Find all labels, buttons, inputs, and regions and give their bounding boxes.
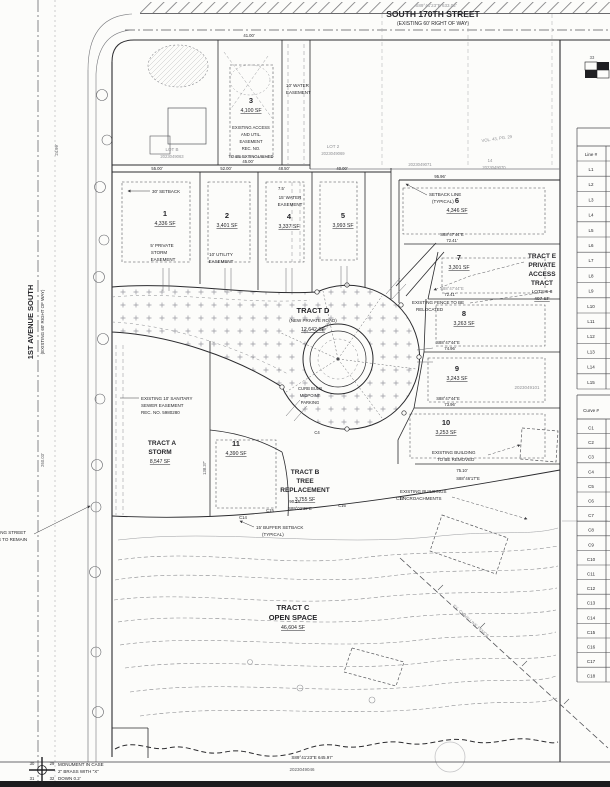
parcel-lot-b: LOT B [166,147,179,152]
section-number-sw: 31 [30,776,35,781]
tract-a-type: STORM [148,449,171,456]
line-table-row: L8 [588,273,594,278]
curve-table-row: C5 [588,484,594,489]
curve-table-row: C11 [587,572,595,577]
tract-b-name: TRACT B [291,469,320,476]
curve-table-row: C2 [588,440,594,445]
scan-edge-band [0,781,610,787]
note-sewer-easement: REC. NO. 5980280 [141,410,180,415]
bearing-lot8-9: S88°47'44"E [436,340,460,345]
line-table-row: L3 [588,197,594,202]
dim-lot2-top: 52.00' [220,166,231,171]
note-buffer-setback: 15' BUFFER SETBACK [256,525,303,530]
parcel-071: 2023049071 [408,162,432,167]
street-1st-ave: 1ST AVENUE SOUTH (EXISTING 60' RIGHT OF … [26,0,112,781]
line-table-row: L14 [587,365,595,370]
lot-8-number: 8 [462,309,466,318]
tract-e-line4: TRACT [531,280,553,287]
lot-1-number: 1 [163,209,167,218]
dim-top-lot3: 41.00' [243,33,254,38]
line-table-row: L11 [587,319,595,324]
plat-map-page: S89°41'23"E 633.02' SOUTH 170TH STREET (… [0,0,610,787]
line-table-row: L15 [587,380,595,385]
line-table-row: L13 [587,349,595,354]
dim-lot5-top: 40.00' [336,166,347,171]
plat-map-drawing: S89°41'23"E 633.02' SOUTH 170TH STREET (… [0,0,610,787]
curve-table: Curve # C1 C2 C3 C4 C5 C6 C7 C8 C9 C10 C… [577,395,610,682]
dim-lot1-top: 55.00' [151,166,162,171]
curve-c15: C15 [266,508,274,513]
note-sewer-easement: SEWER EASEMENT [141,403,184,408]
pavement-hatch [140,2,610,13]
lot-10-area: 3,253 SF [435,430,456,436]
lot-11-area: 4,390 SF [225,451,246,457]
note-30-setback: 30' SETBACK [152,189,180,194]
note-water-easement-15: EASEMENT [278,202,303,207]
curve-table-row: C15 [587,630,596,635]
note-utility-easement: 10' UTILITY [209,252,233,257]
curve-table-row: C12 [587,586,596,591]
tract-d-type: (NEW PRIVATE ROAD) [289,318,337,323]
curve-c4: C4 [314,430,320,435]
note-extinguish: REC. NO. [242,146,261,151]
note-curb-bulb: PARKING [301,400,320,405]
curve-c14: C14 [239,515,247,520]
parcel-lot-b-number: 2023049063 [160,154,184,159]
note-water-easement-10: 10' WATER [286,83,310,88]
curve-table-row: C16 [587,645,596,650]
tract-d-name: TRACT D [297,306,330,315]
lot-2-number: 2 [225,211,229,220]
line-table-header: Line # [585,152,598,157]
monument-note-2: 2" BRASS WITH "X" [58,769,99,774]
curve-table-row: C4 [588,469,594,474]
lot-9-area: 3,243 SF [446,376,467,382]
parcel-lot-2-number: 2023049069 [321,151,345,156]
curve-table-row: C9 [588,542,594,547]
lot-7-number: 7 [457,253,461,262]
bearing-lot9-10: S88°47'44"E [436,396,460,401]
note-street-trees: TREES TO REMAIN [0,537,27,542]
tract-a-area: 8,547 SF [150,459,170,465]
existing-building-outline [168,108,206,144]
note-buffer-setback: (TYPICAL) [262,532,284,537]
lot-11-number: 11 [232,439,240,448]
lot-4-number: 4 [287,212,292,221]
note-water-easement-15: 15' WATER [279,195,303,200]
tract-c-type: OPEN SPACE [269,613,318,622]
tract-c-area: 46,604 SF [281,625,305,631]
street-170th-name: SOUTH 170TH STREET [386,9,480,19]
dim-lot7-8: 72.41' [444,292,455,297]
parcel-14: 14 [488,158,493,163]
lot-6-number: 6 [455,196,459,205]
line-table-row: L4 [588,213,594,218]
south-boundary-treeline [115,739,558,756]
dimensions: 41.00' 45.00' 55.00' 52.00' 48.50' 40.00… [151,33,480,520]
section-number-se: 32 [50,776,55,781]
lot-10-number: 10 [442,418,450,427]
tract-e-lots: LOTS 6-8 [532,289,553,295]
tract-b-type-1: TREE [296,478,314,485]
lot-5-number: 5 [341,211,345,220]
curve-table-row: C7 [588,513,594,518]
street-1st-name: 1ST AVENUE SOUTH [26,285,35,360]
note-street-trees: EXISTING STREET [0,530,26,535]
tract-c-name: TRACT C [277,603,310,612]
tract-e-name: TRACT E [528,253,557,260]
line-table: Line # L1 L2 L3 L4 L5 L6 L7 L8 L9 L10 L1… [577,128,610,389]
dim-lot10-bottom: 75.10' [456,468,467,473]
curve-table-row: C8 [588,528,594,533]
dim-south-line: 90.14' [289,499,300,504]
lot-2-area: 3,401 SF [216,223,237,229]
section-number-ne: 29 [50,761,55,766]
tree-canopy [148,45,208,87]
note-building-removed: EXISTING BUILDING [432,450,476,455]
lot-5-area: 3,993 SF [332,223,353,229]
dim-lot9-10: 73.96' [444,402,455,407]
street-170th-row: (EXISTING 60' RIGHT OF WAY) [397,21,469,27]
lot-3-area: 4,100 SF [240,108,261,114]
curve-table-row: C17 [587,659,596,664]
curve-table-row: C14 [587,615,596,620]
street-170th-bearing: S89°41'23"E 633.02' [415,3,456,8]
tract-e-line3: ACCESS [528,271,556,278]
lot-6-area: 4,346 SF [446,208,467,214]
tract-e-line2: PRIVATE [528,262,556,269]
monument-note-1: MONUMENT IN CASE [58,762,104,767]
parcel-070: 2023049070 [482,165,506,170]
note-storm-easement: EASEMENT [151,257,176,262]
lot-9-number: 9 [455,364,459,373]
tract-b-type-2: REPLACEMENT [280,487,330,494]
lot-4-area: 3,337 SF [278,224,299,230]
parcel-east: 2023049101 [514,385,540,390]
note-storm-easement: STORM [151,250,167,255]
curve-table-row: C13 [587,601,596,606]
tract-c-contours [114,528,558,716]
curve-table-row: C18 [587,674,596,679]
note-water-easement-10: EASEMENT [286,90,311,95]
tract-a-name: TRACT A [148,440,177,447]
street-trees [90,90,113,718]
lot-3-number: 3 [249,96,253,105]
note-curb-bulb: CURB BULB [298,386,322,391]
curve-c17: C17 [396,496,404,501]
note-storm-easement: 5' PRIVATE [150,243,173,248]
note-extinguish: AND UTIL. [241,132,261,137]
south-bearing: S89°41'23"E 645.97' [291,755,332,760]
note-setback-typical: SETBACK LINE [429,192,461,197]
checker-label: 33 [590,55,595,60]
note-building-removed: TO BE REMOVED [437,457,475,462]
note-encroachments: ENCROACHMENTS [400,496,442,501]
section-number-nw: 30 [30,761,35,766]
dim-24-99: 24.99' [54,144,59,155]
dim-lot8-9: 74.96' [444,346,455,351]
curve-table-row: C10 [587,557,596,562]
line-table-row: L9 [588,289,594,294]
note-curb-bulb: MIDPOINT [300,393,321,398]
dim-260-03: 260.03' [40,453,45,467]
note-utility-easement: EASEMENT [209,259,234,264]
existing-building-outline [430,515,508,574]
note-sewer-easement: EXISTING 10' SANITARY [141,396,192,401]
bearing-lot10-bottom: S88°46'17"E [456,476,480,481]
curve-table-row: C3 [588,455,594,460]
street-1st-row: (EXISTING 60' RIGHT OF WAY) [40,289,45,354]
tree-canopy [230,65,270,95]
parcel-vol-pg: VOL. 43, PG. 29 [481,134,513,143]
tract-d-area: 12,642 SF [301,327,325,333]
tract-c-features: EX. CHAIN LINK FENCE [115,558,608,756]
lot-7-area: 3,301 SF [448,265,469,271]
dim-lot4-top: 48.50' [278,166,289,171]
note-offset-75: 7.5' [278,186,285,191]
dim-lot6-top: 95.96' [434,174,445,179]
bearing-lot7-8: S88°47'44"E [440,286,464,291]
line-table-row: L1 [588,167,594,172]
dim-lot11-west: 138.37' [202,461,207,475]
note-encroachments: EXISTING BUILDINGS [400,489,447,494]
existing-building-outline [344,648,404,686]
scale-checker: 33 [585,55,609,78]
note-setback-typical: (TYPICAL) [432,199,454,204]
dim-bottom-lot3: 45.00' [242,159,253,164]
dim-lot6-7: 72.41' [446,238,457,243]
scan-artifact-circle [435,742,465,772]
note-extinguish: EASEMENT [239,139,262,144]
existing-building-outline [520,428,558,462]
note-fence-relocated: RELOCATED [416,307,444,312]
lot-8-area: 3,263 SF [453,321,474,327]
monument: 30 29 31 32 MONUMENT IN CASE 2" BRASS WI… [29,757,104,783]
line-table-row: L5 [588,228,594,233]
line-table-row: L10 [587,304,595,309]
curve-c16: C16 [338,503,346,508]
fence-label: EX. CHAIN LINK FENCE [452,603,490,638]
curve-table-header: Curve # [583,408,599,413]
note-fence-relocated: EXISTING FENCE TO BE [412,300,464,305]
bearing-south-line: S89°02'39"E [288,506,312,511]
lot-1-area: 4,336 SF [154,221,175,227]
curve-table-row: C6 [588,499,594,504]
line-table-row: L12 [587,334,595,339]
note-extinguish: EXISTING ACCESS [232,125,270,130]
line-table-row: L2 [588,182,594,187]
parcel-lot-2: LOT 2 [327,144,340,149]
line-table-row: L6 [588,243,594,248]
parcel-south: 2023049046 [289,767,315,772]
tract-e-area: 407 SF [534,296,550,302]
bearing-lot6-7: S88°47'44"E [440,232,464,237]
monument-note-3: DOWN 0.2' [58,776,81,781]
line-table-row: L7 [588,258,594,263]
curve-table-row: C1 [588,426,594,431]
